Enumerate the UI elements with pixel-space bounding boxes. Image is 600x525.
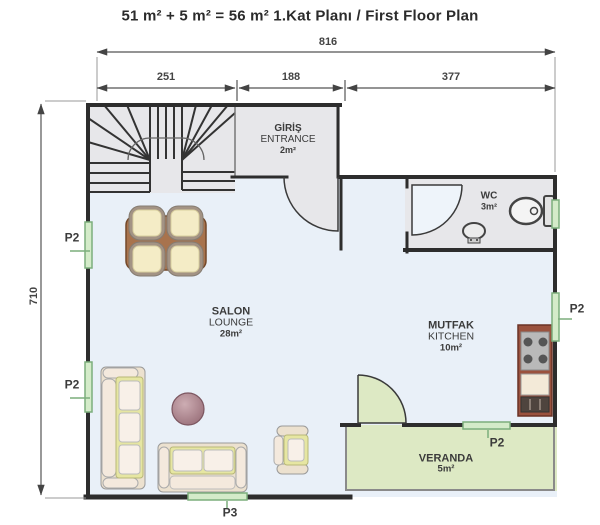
window-p2-right	[552, 293, 559, 341]
room-label-kitchen: MUTFAK KITCHEN 10m²	[428, 320, 474, 355]
dim-total-label: 816	[319, 36, 337, 48]
floor-fills	[88, 103, 557, 497]
window-label-p2-right: P2	[570, 302, 585, 315]
armchair	[274, 426, 308, 474]
room-label-entrance: GİRİŞ ENTRANCE 2m²	[260, 123, 315, 155]
room-label-veranda: VERANDA 5m²	[419, 453, 473, 476]
dim-seg3-label: 377	[442, 71, 460, 83]
window-label-p2-kitchen: P2	[490, 436, 505, 449]
dim-height-label: 710	[28, 287, 40, 305]
dining-chair	[167, 206, 203, 240]
dining-chair	[129, 242, 165, 276]
sofa-three-seat	[101, 367, 145, 489]
dining-chair	[129, 206, 165, 240]
dim-seg1-label: 251	[157, 71, 175, 83]
coffee-table	[172, 393, 204, 425]
room-label-wc: WC 3m²	[481, 190, 498, 211]
floor-plan: 51 m² + 5 m² = 56 m² 1.Kat Planı / First…	[0, 0, 600, 525]
plan-title: 51 m² + 5 m² = 56 m² 1.Kat Planı / First…	[122, 9, 479, 26]
window-p2-left-upper	[85, 222, 92, 268]
dim-seg2-label: 188	[282, 71, 300, 83]
window-label-p2-left-upper: P2	[65, 231, 80, 244]
window-label-p3-bottom: P3	[223, 506, 238, 519]
window-p3-bottom	[188, 493, 247, 500]
window-p2-kitchen	[463, 422, 510, 429]
dining-set	[126, 206, 206, 276]
sofa-two-seat	[158, 443, 247, 492]
dining-chair	[167, 242, 203, 276]
window-p2-left-lower	[85, 362, 92, 412]
window-wc	[552, 200, 559, 228]
toilet-icon	[510, 196, 554, 226]
room-label-salon: SALON LOUNGE 28m²	[209, 306, 253, 341]
stove-icon	[518, 325, 552, 416]
window-label-p2-left-lower: P2	[65, 378, 80, 391]
